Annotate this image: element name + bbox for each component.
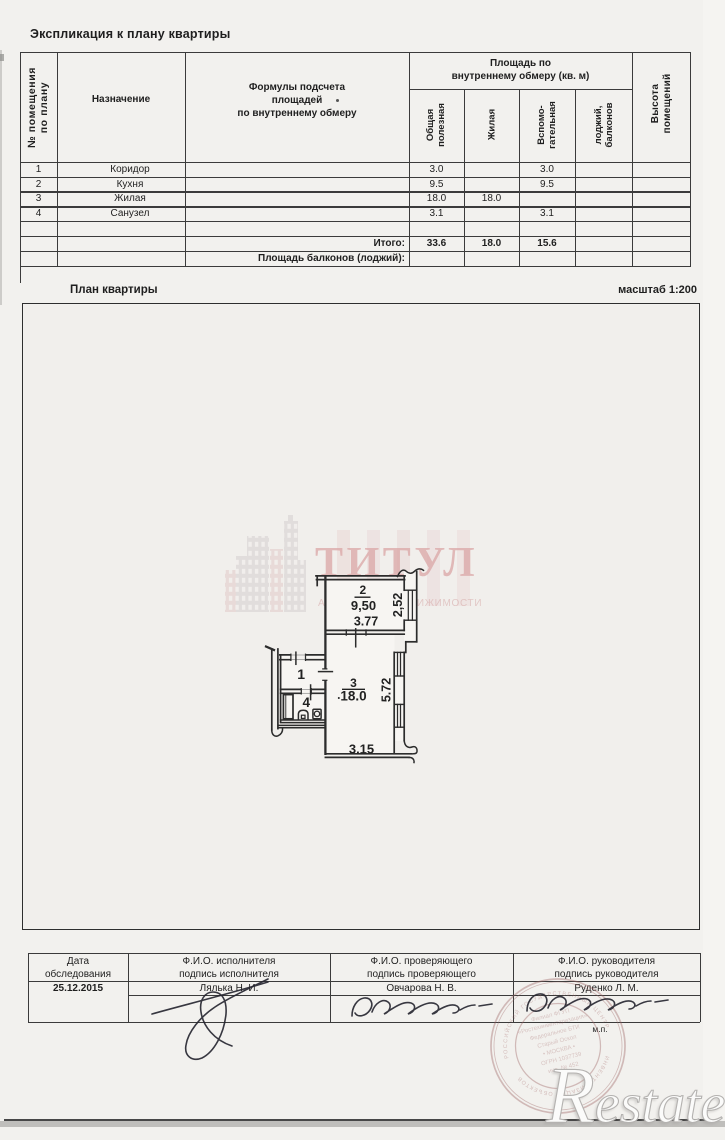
svg-text:2: 2 xyxy=(359,583,366,597)
svg-text:3.15: 3.15 xyxy=(349,741,374,756)
svg-text:18.0: 18.0 xyxy=(340,689,366,704)
svg-text:3.77: 3.77 xyxy=(354,615,378,629)
svg-text:9,50: 9,50 xyxy=(351,598,376,613)
svg-text:4: 4 xyxy=(303,695,311,710)
svg-text:2,52: 2,52 xyxy=(391,593,405,617)
svg-text:5.72: 5.72 xyxy=(380,678,394,702)
svg-text:1: 1 xyxy=(297,666,305,682)
